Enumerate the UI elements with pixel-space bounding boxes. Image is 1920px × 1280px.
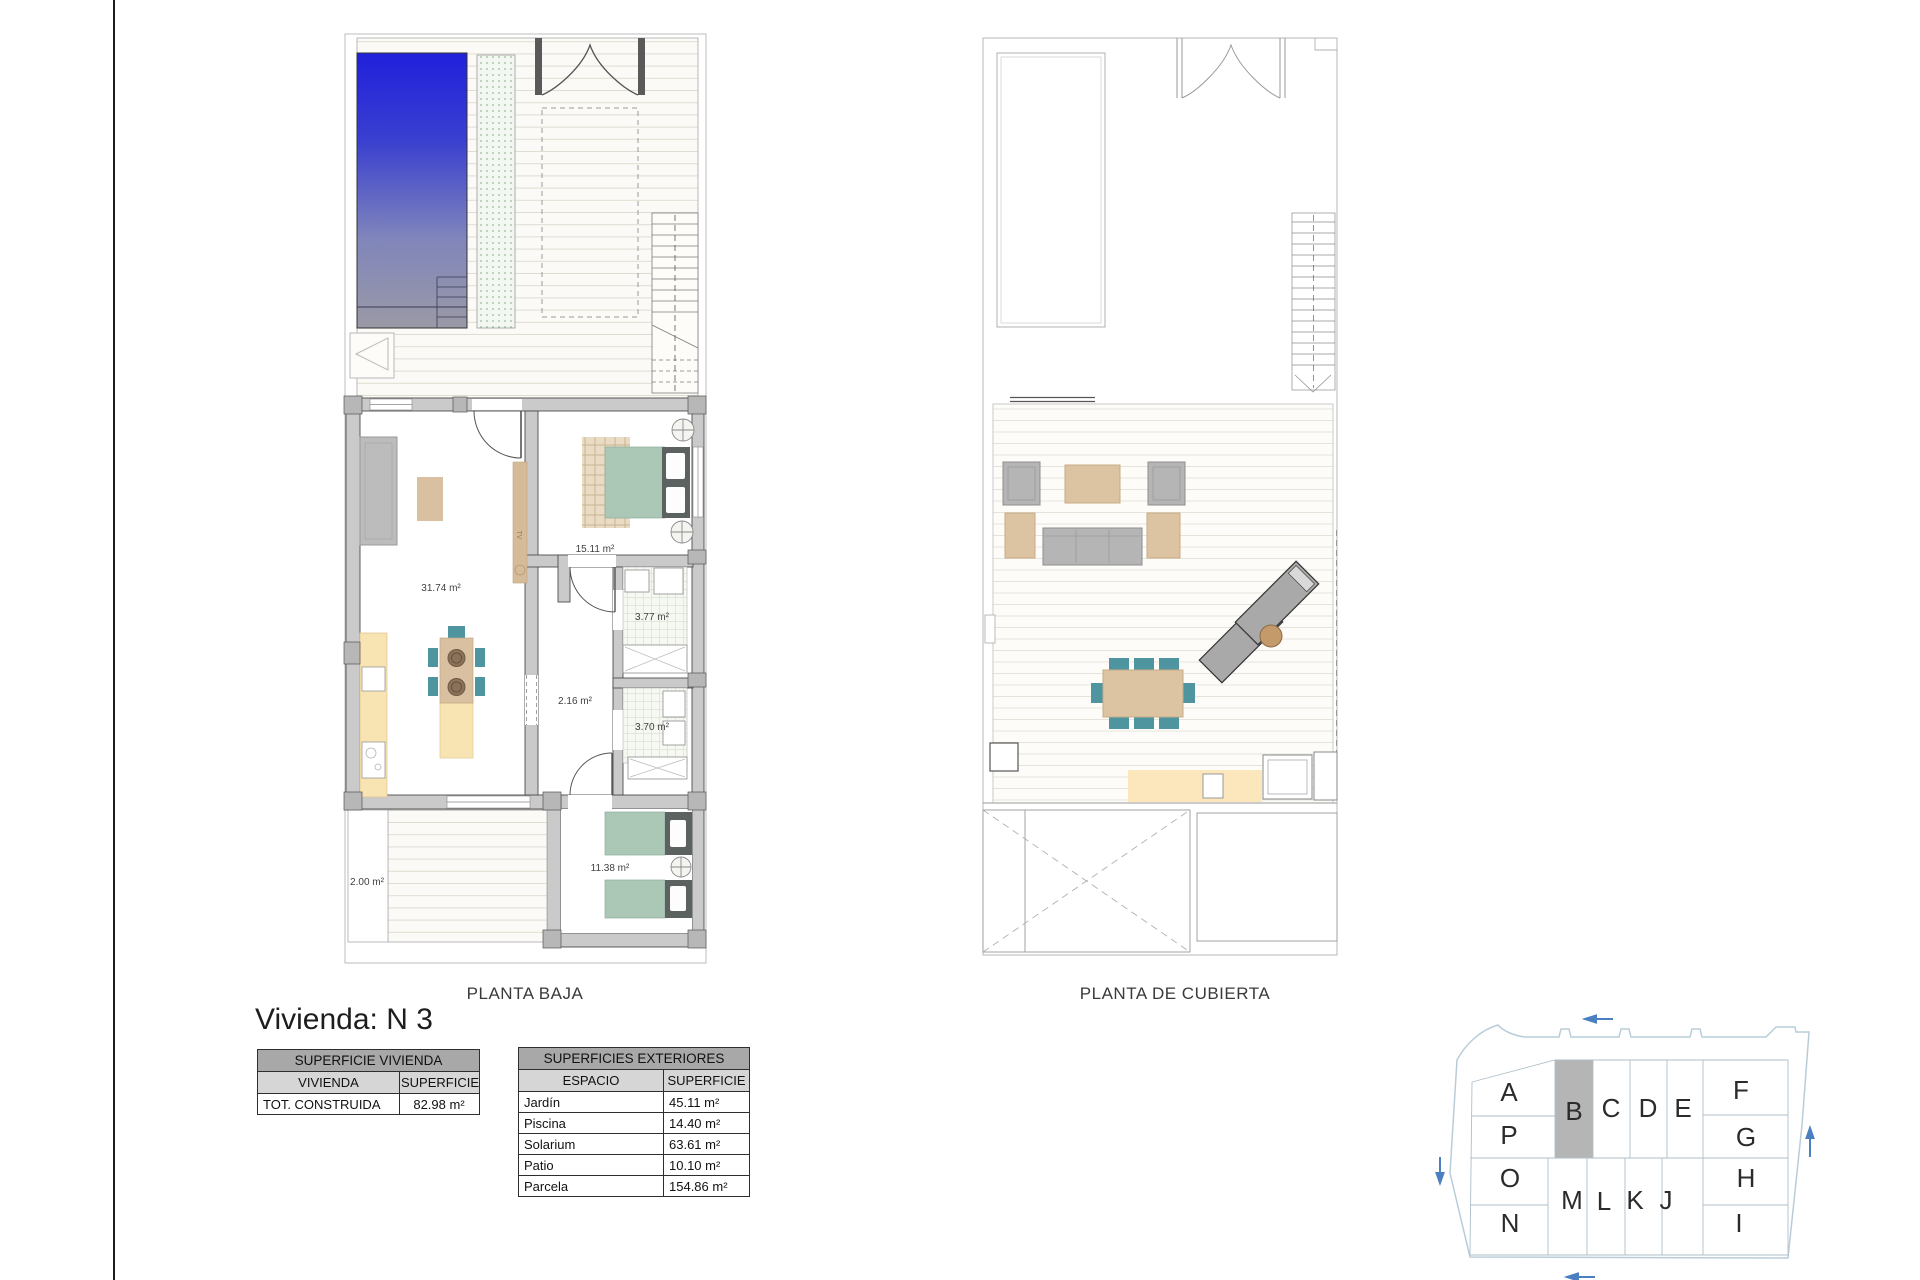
rug (417, 477, 443, 521)
table-row: Jardín 45.11 m² (519, 1092, 750, 1113)
unit-letters: A P B C D E F G O N M L K J H I (1500, 1075, 1756, 1238)
sofa (360, 437, 397, 545)
table-title: SUPERFICIES EXTERIORES (519, 1048, 750, 1070)
site-key-plan: A P B C D E F G O N M L K J H I (1425, 1005, 1855, 1280)
tv-unit: TV (513, 462, 527, 583)
row-label: Parcela (519, 1176, 664, 1197)
siteplan-unit-b: B (1565, 1096, 1582, 1126)
living-room: TV (360, 437, 527, 797)
roof-lower-section (983, 803, 1337, 952)
siteplan-unit-e: E (1674, 1093, 1691, 1123)
side-table (1260, 625, 1282, 647)
table-title: SUPERFICIE VIVIENDA (258, 1050, 480, 1072)
table-superficies-exteriores: SUPERFICIES EXTERIORES ESPACIO SUPERFICI… (518, 1047, 750, 1197)
swimming-pool (357, 53, 467, 328)
garden-stairs (652, 213, 698, 393)
bedroom-main-area-label: 15.11 m² (576, 544, 615, 555)
siteplan-unit-o: O (1500, 1163, 1520, 1193)
siteplan-unit-c: C (1602, 1093, 1621, 1123)
table-row: Parcela 154.86 m² (519, 1176, 750, 1197)
siteplan-unit-h: H (1737, 1163, 1756, 1193)
bedroom2-area-label: 11.38 m² (591, 863, 630, 874)
table-row: Patio 10.10 m² (519, 1155, 750, 1176)
siteplan-unit-g: G (1736, 1122, 1756, 1152)
outdoor-shower-marker (350, 333, 394, 378)
table-row: Solarium 63.61 m² (519, 1134, 750, 1155)
column-header: SUPERFICIE (664, 1070, 750, 1092)
patio-area-label: 2.00 m² (350, 877, 385, 888)
sheet-title: Vivienda: N 3 (255, 1003, 433, 1037)
table-row: Piscina 14.40 m² (519, 1113, 750, 1134)
row-value: 14.40 m² (664, 1113, 750, 1134)
table-row: TOT. CONSTRUIDA 82.98 m² (258, 1094, 480, 1115)
siteplan-unit-f: F (1733, 1075, 1749, 1105)
siteplan-unit-i: I (1735, 1208, 1742, 1238)
roof-stairs (1292, 213, 1335, 392)
row-value: 10.10 m² (664, 1155, 750, 1176)
bath1-area-label: 3.77 m² (635, 612, 670, 623)
siteplan-unit-d: D (1639, 1093, 1658, 1123)
double-bed (605, 447, 665, 518)
plan-sheet: TV (0, 0, 1920, 1280)
siteplan-unit-p: P (1500, 1120, 1517, 1150)
hall-area-label: 2.16 m² (558, 696, 593, 707)
bath2-area-label: 3.70 m² (635, 722, 670, 733)
caption-planta-cubierta: PLANTA DE CUBIERTA (990, 984, 1360, 1004)
siteplan-unit-j: J (1660, 1185, 1673, 1215)
row-value: 154.86 m² (664, 1176, 750, 1197)
row-value: 45.11 m² (664, 1092, 750, 1113)
siteplan-unit-l: L (1597, 1186, 1611, 1216)
table-superficie-vivienda: SUPERFICIE VIVIENDA VIVIENDA SUPERFICIE … (257, 1049, 480, 1115)
tv-label: TV (515, 531, 522, 540)
siteplan-unit-n: N (1501, 1208, 1520, 1238)
planting-strip (477, 55, 515, 328)
row-value: 63.61 m² (664, 1134, 750, 1155)
roof-plan (975, 30, 1345, 960)
sheet-border-line (113, 0, 115, 1280)
siteplan-unit-a: A (1500, 1077, 1518, 1107)
edge-pillar (985, 615, 995, 643)
column-header: ESPACIO (519, 1070, 664, 1092)
row-label: Solarium (519, 1134, 664, 1155)
column-header: VIVIENDA (258, 1072, 400, 1094)
row-label: Jardín (519, 1092, 664, 1113)
row-value: 82.98 m² (400, 1094, 480, 1115)
bedroom-main (582, 437, 690, 528)
caption-planta-baja: PLANTA BAJA (340, 984, 710, 1004)
siteplan-unit-k: K (1626, 1185, 1644, 1215)
bathroom-2 (623, 688, 687, 779)
row-label: Piscina (519, 1113, 664, 1134)
living-area-label: 31.74 m² (421, 583, 461, 594)
row-label: TOT. CONSTRUIDA (258, 1094, 400, 1115)
ground-floor-plan: TV (340, 30, 710, 970)
row-label: Patio (519, 1155, 664, 1176)
dining-set (428, 626, 485, 758)
kitchen-counter (360, 633, 387, 797)
siteplan-unit-m: M (1561, 1185, 1583, 1215)
column-header: SUPERFICIE (400, 1072, 480, 1094)
